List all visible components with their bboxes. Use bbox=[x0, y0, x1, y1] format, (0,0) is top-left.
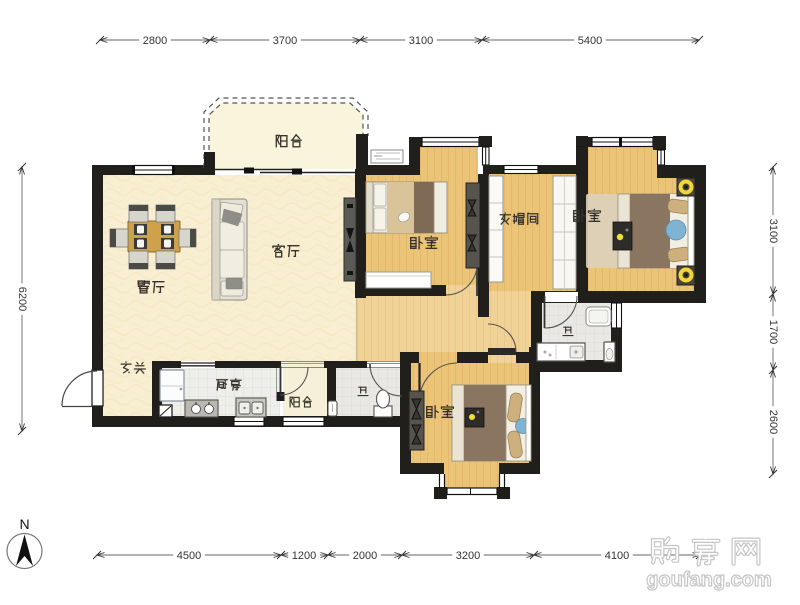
svg-text:2600: 2600 bbox=[767, 410, 779, 434]
svg-text:3700: 3700 bbox=[273, 35, 297, 47]
svg-text:2000: 2000 bbox=[353, 550, 377, 562]
svg-text:1200: 1200 bbox=[292, 550, 316, 562]
svg-text:1700: 1700 bbox=[767, 320, 779, 344]
svg-text:4500: 4500 bbox=[177, 550, 201, 562]
svg-text:4100: 4100 bbox=[605, 550, 629, 562]
svg-text:3200: 3200 bbox=[456, 550, 480, 562]
svg-text:3100: 3100 bbox=[409, 35, 433, 47]
svg-text:2800: 2800 bbox=[143, 35, 167, 47]
svg-text:N: N bbox=[19, 516, 29, 532]
svg-text:5400: 5400 bbox=[578, 35, 602, 47]
svg-text:3100: 3100 bbox=[767, 219, 779, 243]
svg-text:goufang.com: goufang.com bbox=[646, 569, 772, 591]
svg-text:6200: 6200 bbox=[16, 287, 28, 311]
